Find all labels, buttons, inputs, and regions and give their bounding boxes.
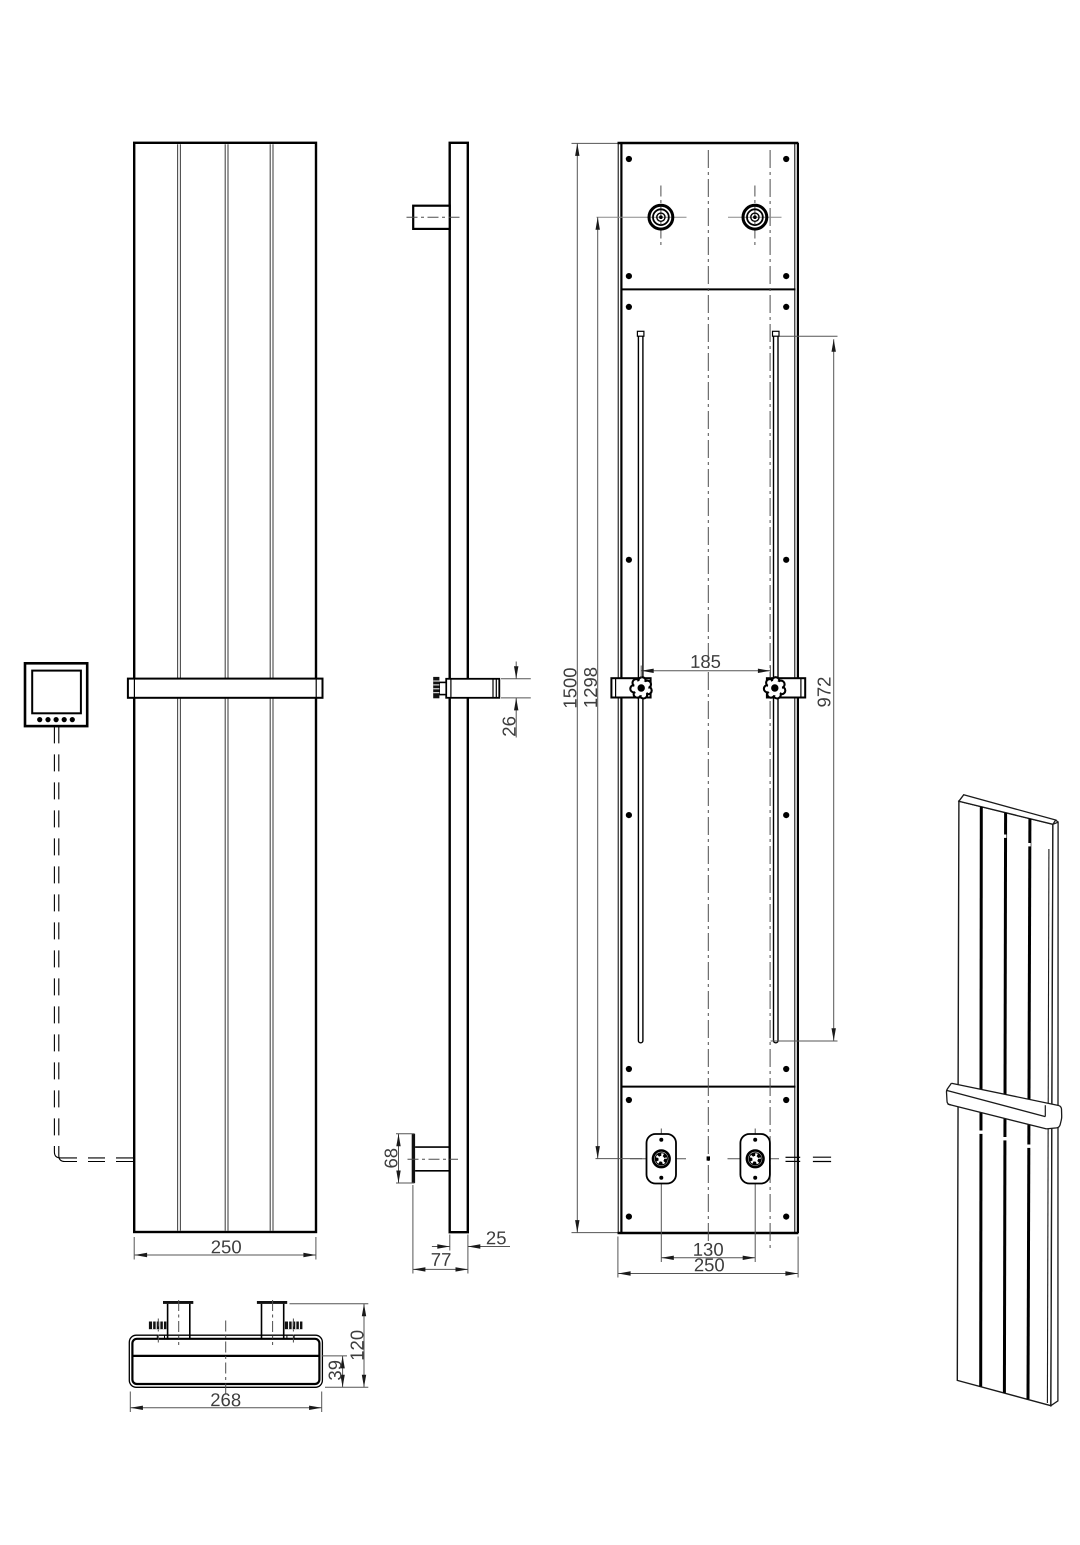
svg-text:120: 120 [346,1330,367,1361]
svg-text:268: 268 [210,1389,241,1410]
svg-text:25: 25 [486,1227,507,1248]
svg-text:68: 68 [380,1148,401,1169]
svg-text:1298: 1298 [580,667,601,708]
svg-text:39: 39 [325,1360,346,1381]
svg-text:250: 250 [694,1254,725,1275]
svg-text:26: 26 [499,716,520,737]
svg-text:1500: 1500 [560,667,581,708]
svg-text:250: 250 [211,1236,242,1257]
svg-text:185: 185 [690,651,721,672]
svg-text:972: 972 [814,677,835,708]
svg-text:77: 77 [431,1249,452,1270]
